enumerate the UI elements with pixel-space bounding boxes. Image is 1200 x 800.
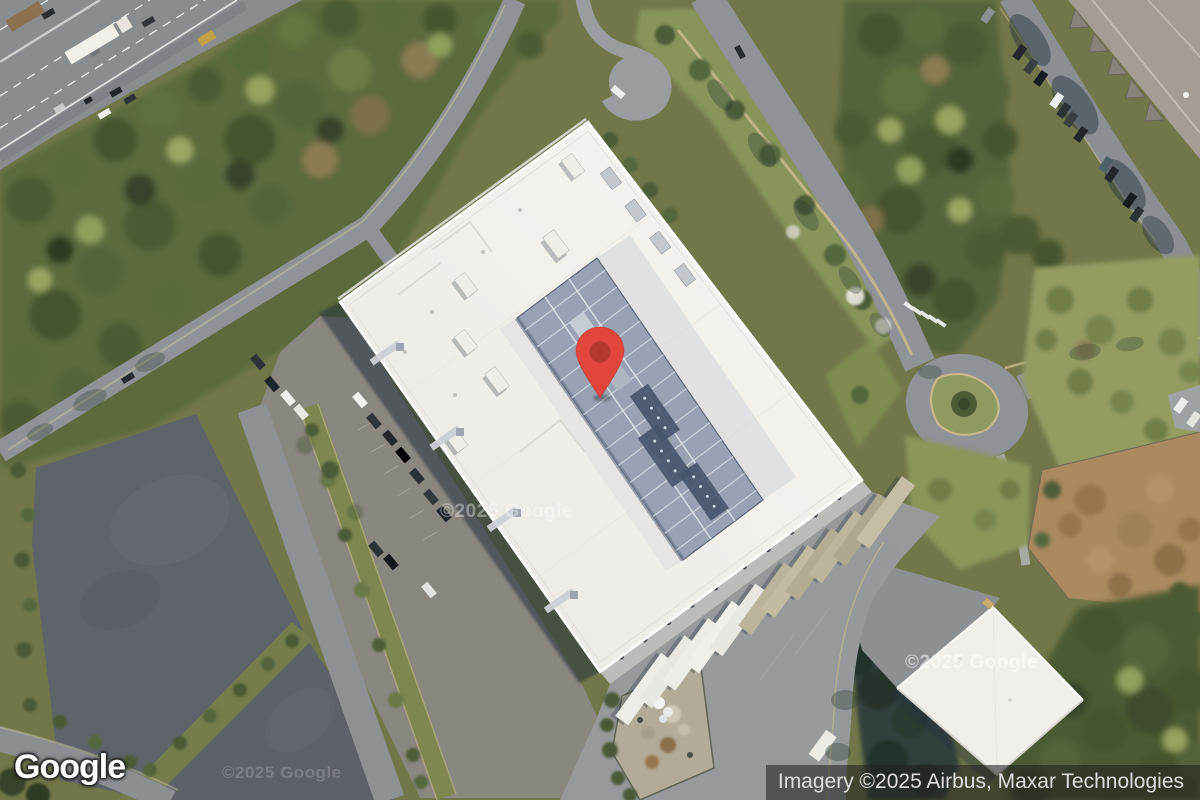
watermark-on-building: ©2025 Google xyxy=(905,652,1038,673)
google-logo[interactable]: Google xyxy=(14,748,125,787)
watermark-bottom-left: ©2025 Google xyxy=(222,763,342,782)
watermark-center: ©2025 Google xyxy=(440,501,573,522)
attribution-bar: Imagery ©2025 Airbus, Maxar Technologies xyxy=(766,765,1200,800)
attribution-text: Imagery ©2025 Airbus, Maxar Technologies xyxy=(778,770,1184,794)
map-canvas[interactable]: ©2025 Google ©2025 Google ©2025 Google G… xyxy=(0,0,1200,800)
